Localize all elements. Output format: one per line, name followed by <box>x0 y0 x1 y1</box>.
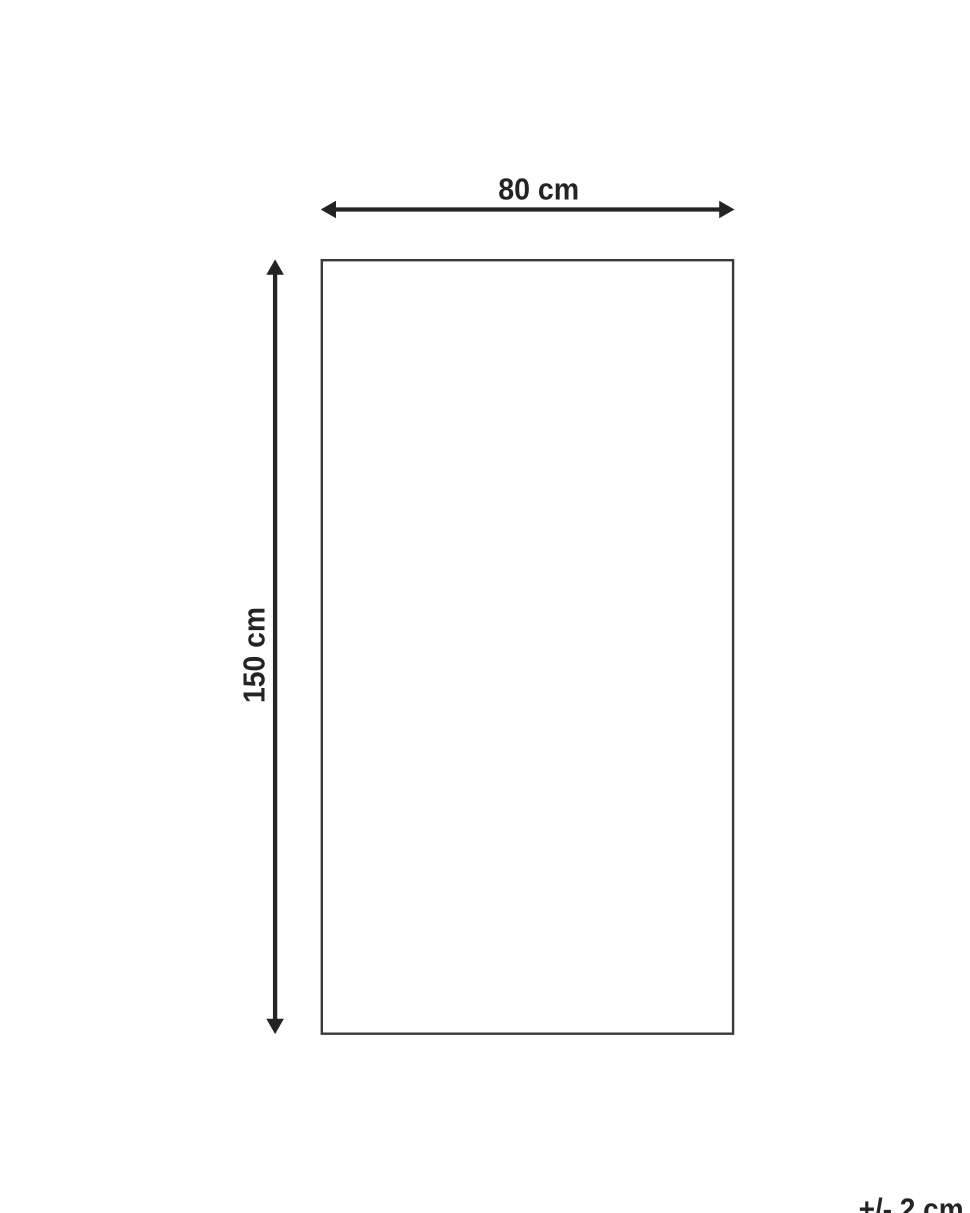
svg-text:+/- 2 cm: +/- 2 cm <box>859 1191 964 1213</box>
svg-text:80 cm: 80 cm <box>498 172 579 207</box>
svg-text:150 cm: 150 cm <box>237 607 272 703</box>
